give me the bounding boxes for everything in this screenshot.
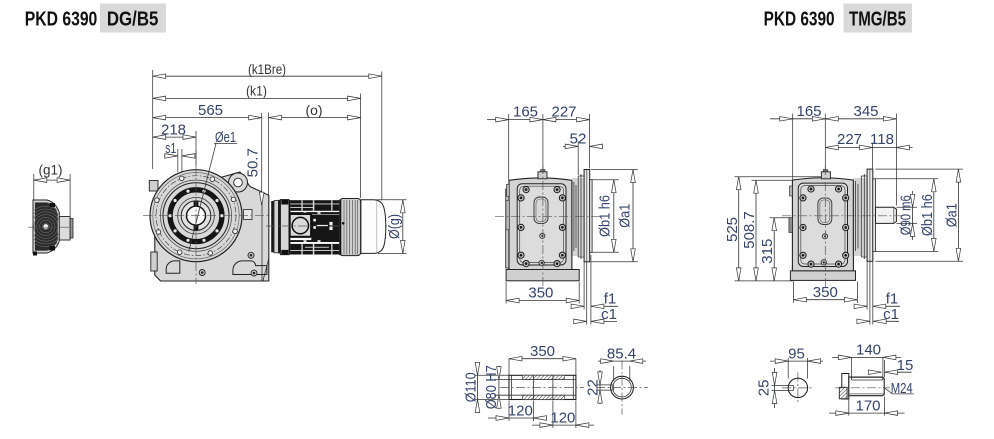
- svg-text:50.7: 50.7: [244, 148, 261, 177]
- svg-text:525: 525: [724, 217, 741, 242]
- svg-text:315: 315: [759, 239, 776, 264]
- svg-text:85.4: 85.4: [607, 345, 636, 362]
- svg-text:Øa1: Øa1: [943, 203, 960, 227]
- svg-text:c1: c1: [601, 306, 617, 323]
- svg-text:15: 15: [897, 357, 914, 374]
- svg-text:PKD 6390: PKD 6390: [764, 8, 835, 30]
- svg-text:165: 165: [796, 103, 821, 120]
- svg-text:170: 170: [855, 397, 880, 414]
- svg-text:Ø80 H7: Ø80 H7: [483, 365, 500, 409]
- svg-text:118: 118: [870, 131, 894, 148]
- svg-text:52: 52: [570, 131, 587, 148]
- svg-text:f1: f1: [886, 291, 899, 308]
- svg-text:(g1): (g1): [39, 162, 63, 178]
- svg-text:120: 120: [550, 410, 575, 427]
- svg-text:350: 350: [813, 284, 838, 301]
- svg-text:95: 95: [788, 345, 805, 362]
- svg-text:345: 345: [853, 103, 878, 120]
- svg-text:227: 227: [551, 104, 576, 121]
- svg-text:Ø110: Ø110: [462, 372, 479, 402]
- svg-text:PKD 6390: PKD 6390: [25, 8, 98, 30]
- svg-text:565: 565: [198, 102, 223, 119]
- svg-text:Ø(g): Ø(g): [386, 214, 403, 239]
- svg-text:227: 227: [837, 131, 862, 148]
- svg-text:Øb1 h6: Øb1 h6: [596, 195, 613, 237]
- svg-text:c1: c1: [883, 306, 899, 323]
- svg-text:350: 350: [528, 285, 553, 302]
- svg-text:508.7: 508.7: [741, 211, 758, 249]
- svg-text:165: 165: [513, 104, 538, 121]
- svg-text:218: 218: [161, 121, 186, 138]
- svg-text:350: 350: [530, 343, 555, 360]
- svg-text:M24: M24: [891, 380, 913, 397]
- svg-text:s1: s1: [165, 140, 176, 157]
- svg-text:120: 120: [508, 402, 533, 419]
- svg-text:Øb1 h6: Øb1 h6: [919, 194, 936, 236]
- svg-text:f1: f1: [604, 291, 617, 308]
- svg-text:DG/B5: DG/B5: [107, 8, 158, 30]
- svg-text:Ø90 m6: Ø90 m6: [898, 195, 915, 235]
- svg-text:(o): (o): [306, 102, 323, 118]
- svg-text:25: 25: [755, 380, 772, 397]
- svg-text:(k1): (k1): [246, 83, 267, 99]
- svg-text:(k1Bre): (k1Bre): [248, 61, 286, 77]
- svg-text:TMG/B5: TMG/B5: [849, 8, 906, 30]
- svg-text:22: 22: [585, 379, 602, 396]
- svg-text:Øa1: Øa1: [616, 204, 633, 228]
- svg-text:140: 140: [856, 342, 881, 359]
